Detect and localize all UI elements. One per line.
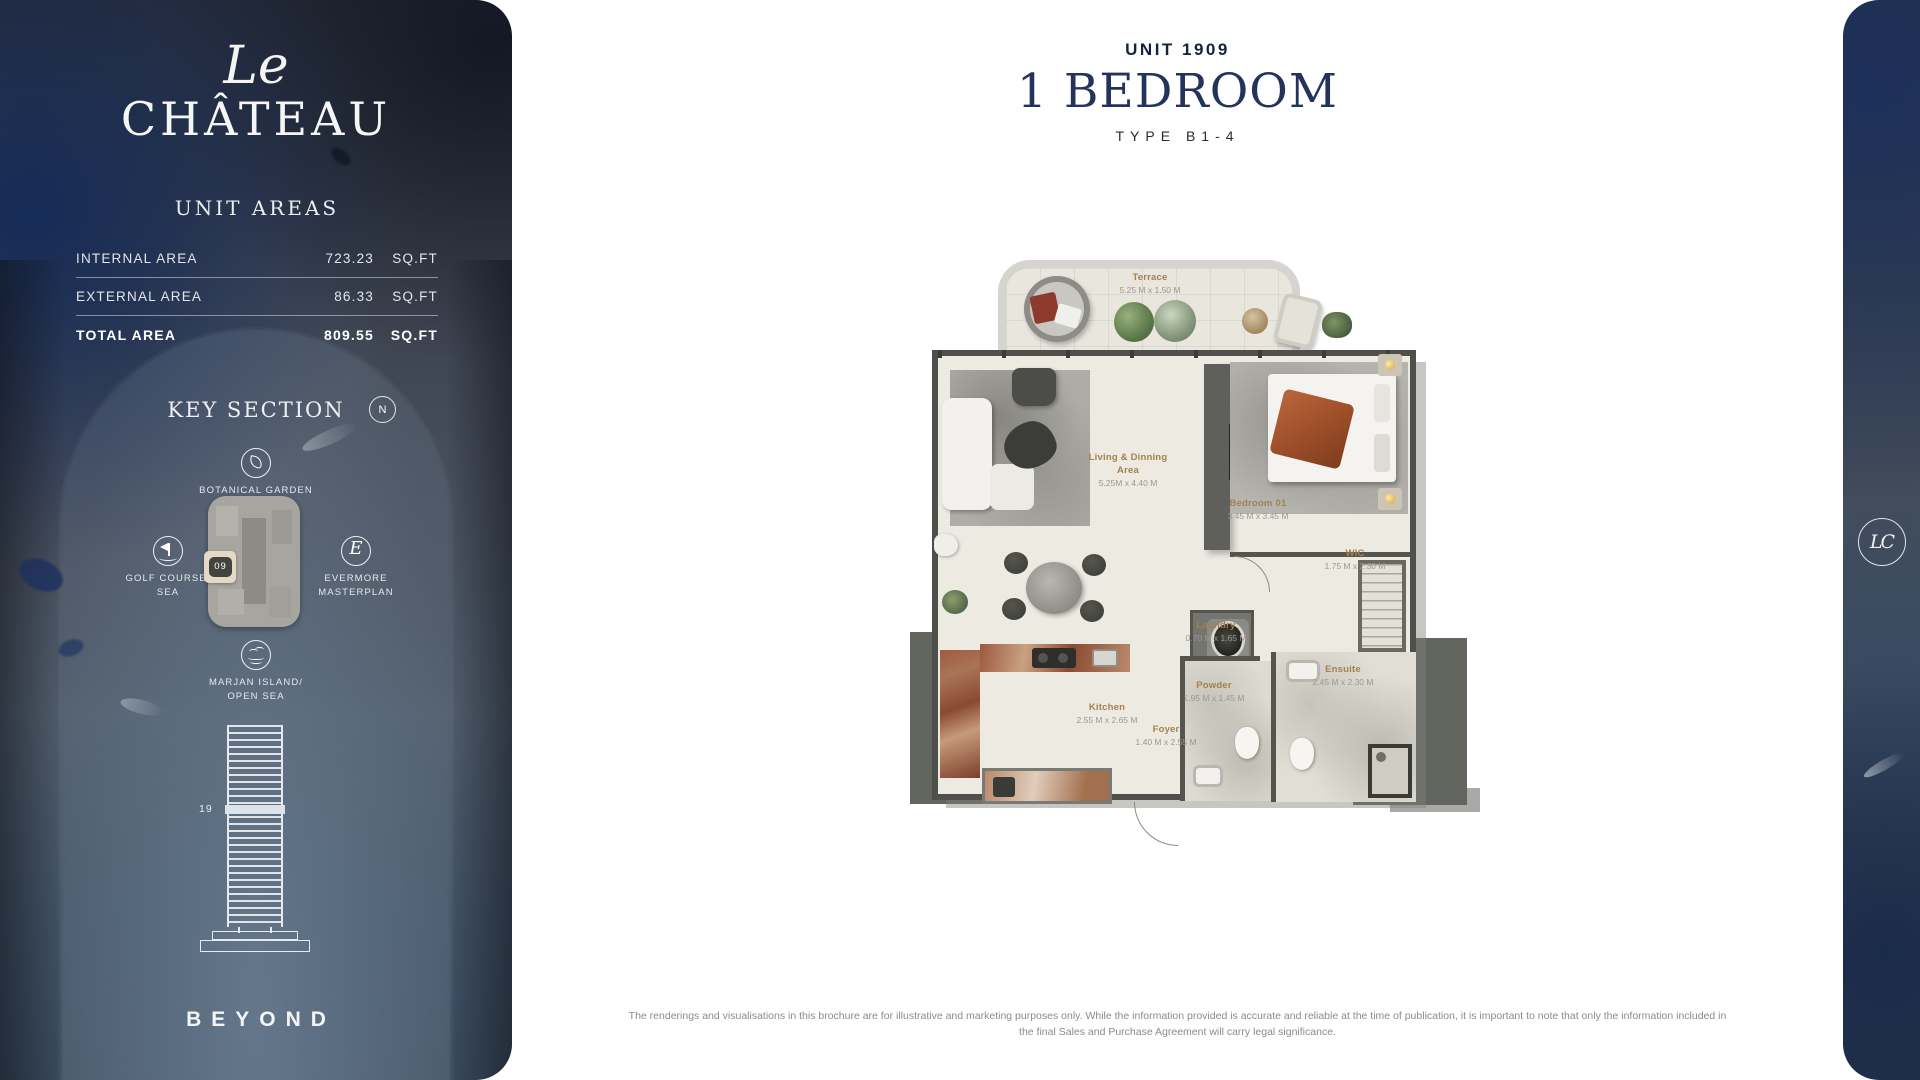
room-label-foyer: Foyer 1.40 M x 2.55 M [1118,724,1214,748]
decorative-side-strip: LC [1843,0,1920,1080]
dining-table [1026,562,1082,614]
unit-areas-table: UNIT AREAS INTERNAL AREA 723.23 SQ.FT EX… [76,196,438,354]
landmark-label-line: SEA [118,586,218,600]
room-label-bedroom: Bedroom 01 3.45 M x 3.45 M [1198,498,1318,522]
room-label-kitchen: Kitchen 2.55 M x 2.65 M [1052,702,1162,726]
wardrobe [1358,560,1406,652]
brand-logo: Le CHÂTEAU [0,40,512,145]
floorplate-core [242,518,266,604]
table-row: INTERNAL AREA 723.23 SQ.FT [76,240,438,278]
kitchen-counter [940,650,980,778]
brochure-page: Le CHÂTEAU UNIT AREAS INTERNAL AREA 723.… [0,0,1920,1080]
arch-column-right [446,260,512,1080]
page-title: 1 BEDROOM [512,66,1843,118]
area-label: INTERNAL AREA [76,251,304,266]
evermore-monogram-icon: E [341,536,371,566]
unit-number: UNIT 1909 [512,40,1843,60]
room-label-ensuite: Ensuite 2.45 M x 2.30 M [1288,664,1398,688]
lounge-chair [1273,292,1324,350]
floor-highlight-band [225,805,285,814]
unit-position-highlight: 09 [204,551,236,583]
plant [1322,312,1352,338]
kitchen-cabinet [982,768,1112,804]
sink [1193,765,1223,787]
beyond-logo: BEYOND [0,1008,512,1032]
unit-header: UNIT 1909 1 BEDROOM TYPE B1-4 [512,40,1843,144]
area-label: EXTERNAL AREA [76,289,304,304]
landmark-label-line: OPEN SEA [176,690,336,704]
planter-pot [1242,308,1268,334]
legal-disclaimer: The renderings and visualisations in thi… [623,1008,1733,1041]
toilet [1290,738,1314,770]
table-row: EXTERNAL AREA 86.33 SQ.FT [76,278,438,316]
chateau-monogram-icon: LC [1858,518,1906,566]
area-value: 723.23 [304,251,374,266]
bedroom-door-swing [1234,556,1270,592]
golf-flag-icon [153,536,183,566]
key-section-title: KEY SECTION [0,398,512,422]
leaf-icon [241,448,271,478]
wall [1180,656,1260,661]
plant [1154,300,1196,342]
landmark-evermore-masterplan: E EVERMORE MASTERPLAN [296,536,416,601]
toilet [1235,727,1259,759]
dining-chair [1004,552,1028,574]
landmark-label-line: EVERMORE [296,572,416,586]
dining-chair [1082,554,1106,576]
nightstand [1378,488,1402,510]
room-label-living: Living & Dinning Area 5.25M x 4.40 M [1078,452,1178,489]
appliance [993,777,1015,797]
cooktop [1032,648,1076,668]
area-unit: SQ.FT [374,251,438,266]
logo-script-le: Le [0,40,512,92]
dining-chair [1080,600,1104,622]
bed-throw [1269,388,1355,469]
kitchen-sink [1092,649,1118,667]
arch-backdrop [62,330,450,1080]
area-value: 86.33 [304,289,374,304]
room-label-laundry: Laundry 0.70 M x 1.65 M [1168,620,1264,644]
armchair [1012,368,1056,406]
room-label-wic: WIC 1.75 M x 2.30 M [1300,548,1410,572]
compass-north-icon: N [369,396,396,423]
bed [1268,374,1396,482]
unit-number-badge: 09 [209,557,232,577]
floorplate-key-map: 09 [208,496,300,627]
floor-plan: Terrace 5.25 M x 1.50 M [910,258,1468,810]
landmark-golf-course-sea: GOLF COURSE/ SEA [118,536,218,601]
brand-panel: Le CHÂTEAU UNIT AREAS INTERNAL AREA 723.… [0,0,512,1080]
sofa [942,398,992,510]
landmark-label-line: MARJAN ISLAND/ [176,676,336,690]
logo-chateau: CHÂTEAU [0,94,512,145]
entry-door-swing [1134,802,1178,846]
feather-decoration [1862,749,1907,781]
accent-chair [934,534,958,556]
unit-type: TYPE B1-4 [512,128,1843,144]
arch-column-left [0,260,66,1080]
area-unit: SQ.FT [374,327,438,343]
petal-decoration [328,144,353,168]
table-row-total: TOTAL AREA 809.55 SQ.FT [76,316,438,354]
main-content: UNIT 1909 1 BEDROOM TYPE B1-4 Terrace 5.… [512,0,1843,1080]
sofa-chaise [990,464,1034,510]
landmark-label-line: GOLF COURSE/ [118,572,218,586]
plant [1114,302,1154,342]
building-podium [212,931,298,940]
landmark-marjan-island: MARJAN ISLAND/ OPEN SEA [176,640,336,705]
landmark-label-line: MASTERPLAN [296,586,416,600]
room-label-terrace: Terrace 5.25 M x 1.50 M [1070,272,1230,296]
building-base [200,940,310,952]
nightstand [1378,354,1402,376]
area-label: TOTAL AREA [76,327,304,343]
dining-chair [1002,598,1026,620]
shower [1368,744,1412,798]
floor-number-label: 19 [199,803,213,815]
plant [942,590,968,614]
area-value: 809.55 [304,327,374,343]
bird-over-sea-icon [241,640,271,670]
kitchen-island [980,644,1130,672]
landmark-botanical-garden: BOTANICAL GARDEN [176,448,336,498]
building-elevation: 19 [227,725,283,927]
area-unit: SQ.FT [374,289,438,304]
unit-areas-title: UNIT AREAS [76,196,438,220]
room-label-powder: Powder 1.95 M x 1.45 M [1168,680,1260,704]
